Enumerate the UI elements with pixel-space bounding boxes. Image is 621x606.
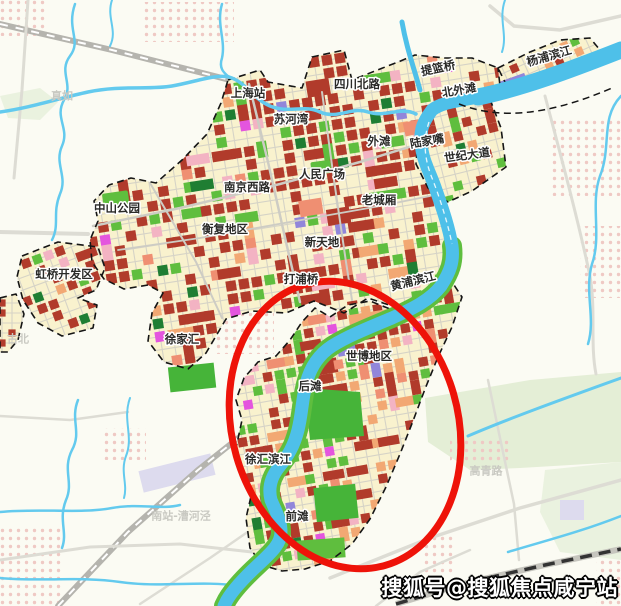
map-faded-label-1: 古北: [7, 332, 29, 346]
map-label-9: 人民广场: [299, 167, 345, 181]
land-use-block: [375, 388, 386, 399]
land-use-block: [391, 83, 403, 95]
land-use-block: [194, 167, 206, 179]
land-use-block: [294, 217, 306, 229]
land-use-block: [377, 400, 388, 411]
land-use-block: [408, 370, 419, 381]
land-use-block: [420, 368, 431, 379]
land-use-block: [378, 339, 389, 350]
land-use-block: [184, 352, 196, 364]
land-use-block: [243, 146, 255, 158]
land-use-block: [395, 187, 407, 199]
map-label-11: 中山公园: [94, 201, 140, 215]
land-use-block: [237, 437, 248, 448]
map-label-12: 衡复地区: [202, 222, 248, 236]
land-use-block: [376, 461, 387, 472]
land-use-block: [392, 254, 404, 266]
land-use-block: [219, 242, 231, 254]
land-use-block: [412, 211, 424, 223]
land-use-block: [346, 129, 358, 141]
land-use-block: [208, 256, 220, 268]
land-use-block: [269, 407, 280, 418]
map-label-0: 上海站: [231, 86, 266, 100]
land-use-block: [302, 97, 314, 109]
land-use-block: [239, 199, 251, 211]
land-use-block: [225, 109, 237, 121]
map-label-20: 后滩: [299, 379, 322, 393]
land-use-block: [275, 259, 287, 271]
land-use-block: [414, 224, 426, 236]
map-label-21: 徐汇滨江: [244, 452, 291, 466]
land-use-block: [336, 65, 348, 77]
land-use-block: [312, 448, 323, 459]
land-use-block: [333, 131, 345, 143]
land-use-block: [378, 473, 389, 484]
land-use-block: [295, 137, 307, 149]
land-use-block: [324, 373, 335, 384]
planning-map: 上海站苏河湾四川北路提篮桥北外滩杨浦滨江外滩陆家嘴世纪大道人民广场南京西路中山公…: [0, 0, 621, 606]
land-use-block: [253, 385, 264, 396]
land-use-block: [393, 95, 405, 107]
land-use-block: [284, 152, 296, 164]
land-use-block: [232, 240, 244, 252]
land-use-block: [419, 91, 431, 103]
land-use-block: [402, 335, 413, 346]
land-use-block: [331, 118, 343, 130]
land-use-block: [379, 256, 391, 268]
land-use-block: [253, 289, 265, 301]
land-use-block: [344, 196, 356, 208]
land-use-block: [348, 142, 360, 154]
land-use-block: [161, 290, 173, 302]
land-use-block: [194, 246, 206, 258]
land-use-block: [214, 124, 226, 136]
land-use-block: [247, 423, 258, 434]
land-use-block: [313, 521, 324, 532]
land-use-block: [427, 222, 439, 234]
land-use-block: [327, 93, 339, 105]
land-use-block: [347, 369, 358, 380]
land-use-block: [362, 232, 374, 244]
land-use-block: [282, 139, 294, 151]
land-use-block: [284, 356, 295, 367]
land-use-block: [383, 363, 394, 374]
land-use-block: [187, 286, 199, 298]
land-use-block: [397, 372, 408, 383]
land-use-block: [438, 329, 449, 340]
land-use-block: [429, 235, 441, 247]
land-use-block: [286, 165, 298, 177]
watermark: 搜狐号@搜狐焦点咸宁站: [382, 572, 619, 602]
land-use-block: [303, 462, 314, 473]
map-label-10: 南京西路: [224, 180, 270, 194]
map-label-16: 打浦桥: [284, 272, 319, 286]
map-label-6: 外滩: [367, 134, 391, 148]
land-use-block: [132, 190, 144, 202]
land-use-block: [104, 260, 116, 272]
land-use-block: [157, 265, 169, 277]
qiantan-park-block: [313, 484, 358, 522]
land-use-block: [379, 85, 391, 97]
map-label-15: 虹桥开发区: [35, 267, 93, 281]
land-use-block: [251, 276, 263, 288]
land-use-block: [131, 269, 143, 281]
land-use-block: [264, 383, 275, 394]
houtan-park-block: [305, 388, 364, 440]
land-use-block: [245, 237, 257, 249]
land-use-block: [280, 127, 292, 139]
land-use-block: [142, 254, 154, 266]
map-faded-label-2: 南站-漕河泾: [151, 509, 211, 523]
map-faded-label-3: 高青路: [470, 464, 504, 478]
land-use-block: [333, 359, 344, 370]
land-use-block: [243, 399, 254, 410]
land-use-block: [305, 474, 316, 485]
land-use-block: [424, 319, 435, 330]
land-use-block: [344, 116, 356, 128]
land-use-block: [308, 135, 320, 147]
land-use-block: [303, 328, 314, 339]
land-use-block: [301, 450, 312, 461]
land-use-block: [274, 88, 286, 100]
land-use-block: [206, 323, 218, 335]
land-use-block: [147, 200, 159, 212]
land-use-block: [273, 167, 285, 179]
map-label-1: 苏河湾: [274, 112, 309, 126]
land-use-block: [418, 356, 429, 367]
land-use-block: [171, 354, 183, 366]
land-use-block: [321, 54, 333, 66]
land-use-block: [367, 414, 378, 425]
land-use-block: [334, 52, 346, 64]
land-use-block: [404, 160, 416, 172]
land-use-block: [377, 243, 389, 255]
land-use-block: [315, 326, 326, 337]
land-use-block: [313, 253, 325, 265]
land-use-block: [408, 185, 420, 197]
land-use-block: [226, 201, 238, 213]
land-use-block: [231, 148, 243, 160]
land-use-block: [185, 273, 197, 285]
land-use-block: [274, 370, 285, 381]
land-use-block: [225, 280, 237, 292]
map-label-2: 四川北路: [334, 77, 380, 91]
land-use-block: [170, 263, 182, 275]
land-use-block: [239, 120, 251, 132]
land-use-block: [227, 293, 239, 305]
land-use-block: [204, 310, 216, 322]
land-use-block: [338, 456, 349, 467]
land-use-block: [404, 81, 416, 93]
land-use-block: [286, 367, 297, 378]
land-use-block: [125, 230, 137, 242]
land-use-block: [368, 100, 380, 112]
map-label-14: 新天地: [305, 235, 340, 249]
land-use-block: [373, 217, 385, 229]
land-use-block: [0, 339, 6, 346]
land-use-block: [281, 298, 293, 310]
map-label-18: 徐家汇: [164, 332, 200, 346]
land-use-block: [114, 245, 126, 257]
land-use-block: [332, 289, 344, 301]
land-use-block: [200, 205, 212, 217]
land-use-block: [335, 371, 346, 382]
land-use-block: [403, 239, 415, 251]
land-use-block: [189, 299, 201, 311]
land-use-block: [293, 125, 305, 137]
land-use-block: [390, 337, 401, 348]
land-use-block: [335, 144, 347, 156]
land-use-block: [373, 376, 384, 387]
land-use-block: [321, 133, 333, 145]
land-use-block: [0, 309, 6, 316]
map-label-13: 老城厢: [361, 193, 397, 207]
land-use-block: [388, 228, 400, 240]
land-use-block: [290, 191, 302, 203]
land-use-block: [295, 488, 306, 499]
land-use-block: [271, 233, 283, 245]
land-use-block: [216, 137, 228, 149]
land-use-block: [240, 291, 252, 303]
land-use-block: [260, 248, 272, 260]
land-use-block: [238, 278, 250, 290]
map-label-22: 前滩: [286, 509, 309, 523]
land-use-block: [151, 226, 163, 238]
land-use-block: [381, 98, 393, 110]
land-use-block: [324, 446, 335, 457]
land-use-block: [326, 458, 337, 469]
land-use-block: [271, 419, 282, 430]
land-use-block: [318, 121, 330, 133]
land-use-block: [163, 303, 175, 315]
land-use-block: [391, 162, 403, 174]
land-use-block: [213, 203, 225, 215]
map-label-19: 世博地区: [346, 349, 392, 363]
land-use-block: [119, 271, 131, 283]
land-use-block: [234, 252, 246, 264]
land-use-block: [152, 318, 164, 330]
land-use-block: [328, 264, 340, 276]
land-use-block: [349, 381, 360, 392]
land-use-block: [367, 258, 379, 270]
land-use-block: [249, 435, 260, 446]
land-use-block: [246, 158, 258, 170]
land-use-block: [416, 237, 428, 249]
land-use-block: [158, 185, 170, 197]
land-use-block: [307, 214, 319, 226]
land-use-block: [181, 169, 193, 181]
land-use-block: [176, 301, 188, 313]
land-use-block: [100, 234, 112, 246]
map-faded-label-0: 真如: [51, 89, 73, 103]
land-use-block: [0, 299, 6, 306]
map-canvas: 上海站苏河湾四川北路提篮桥北外滩杨浦滨江外滩陆家嘴世纪大道人民广场南京西路中山公…: [0, 0, 621, 606]
land-use-block: [264, 274, 276, 286]
land-use-block: [116, 258, 128, 270]
land-use-block: [389, 70, 401, 82]
land-use-block: [278, 393, 289, 404]
land-use-block: [262, 372, 273, 383]
